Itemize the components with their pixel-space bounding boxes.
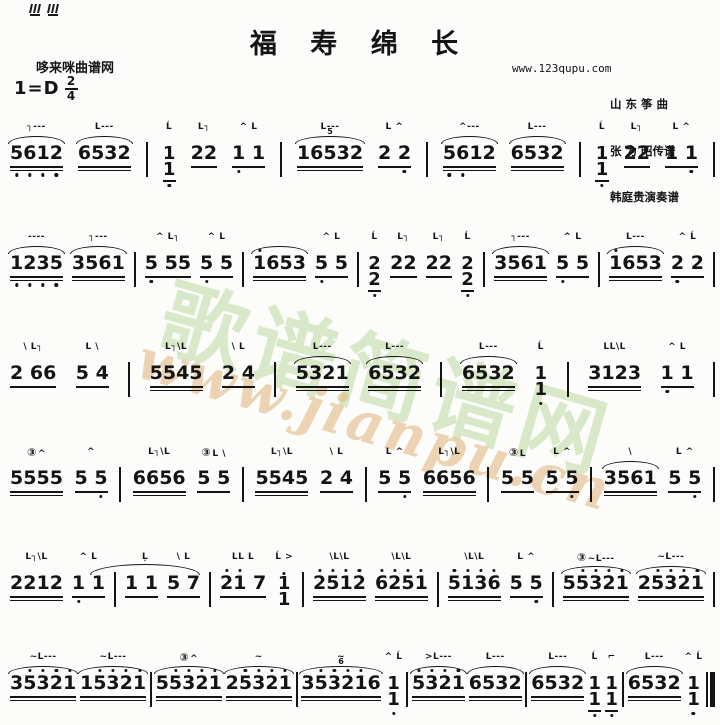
arc-row [163, 135, 176, 143]
technique-marks: Ĺ [599, 122, 605, 135]
note-digit: 2 [390, 253, 403, 274]
technique-marks: L ^ [517, 552, 535, 565]
note-digit: 2 [602, 573, 615, 594]
note-digit: 2 [222, 363, 235, 384]
octave-dot-slot [391, 493, 398, 501]
technique-marks: ^ Ĺ [385, 652, 403, 665]
beam-underlines [167, 596, 200, 598]
note-group: ^ L5 55 5 [315, 232, 348, 286]
arc-row [385, 665, 403, 673]
note-digit: 2 [408, 363, 421, 384]
beam-underlines [78, 166, 131, 171]
note-digit: 5 [150, 363, 163, 384]
technique-marks: Ĺ [166, 122, 172, 135]
note-digits: 22 [624, 143, 650, 164]
octave-dot-slot: 1 [687, 710, 700, 718]
octave-dot-slot: 1 [10, 281, 23, 289]
low-octave-dots: 1 1 [232, 168, 265, 176]
note-digit: 6 [436, 468, 449, 489]
beam-underlines [469, 696, 522, 701]
beam-line [609, 280, 662, 282]
note-digit: 2 [204, 143, 217, 164]
barline [713, 467, 715, 502]
note-digit: 5 [448, 573, 461, 594]
note-digit: 2 [10, 363, 23, 384]
octave-dot-slot: 1 [36, 171, 49, 179]
beam-underlines [494, 276, 547, 281]
note-digits: 6532 [78, 143, 131, 164]
note-digit: 6 [375, 573, 388, 594]
note-digit: 4 [282, 468, 295, 489]
beam-line [628, 696, 681, 698]
beam-underlines [76, 386, 109, 388]
note-group: ^ L5 55 5 [200, 232, 233, 286]
barline [598, 252, 600, 287]
note-digit: 4 [96, 363, 109, 384]
octave-dot-slot: 6 [456, 171, 469, 179]
note-digits: 11 [278, 573, 291, 608]
note-digit: 6 [469, 673, 482, 694]
note-group: ~L---15321 [80, 652, 146, 709]
octave-dot-slot: 1 [685, 168, 698, 176]
note-digits: 22 [426, 253, 452, 274]
octave-dot-slot [678, 168, 685, 176]
barline [713, 142, 715, 177]
low-octave-dots: 1 [595, 182, 608, 190]
technique-marks: ^--- [459, 122, 480, 135]
barline [296, 672, 298, 707]
octave-dot-slot [158, 278, 165, 286]
note-digit: 2 [403, 253, 416, 274]
note-digits: 1653 [253, 253, 306, 274]
arc-row [534, 355, 547, 363]
beam-line [511, 166, 564, 168]
note-group: L ^5 55 5 [668, 447, 701, 501]
note-group: L \5 4 [76, 342, 109, 396]
note-digit: 3 [301, 673, 314, 694]
note-digit: 6 [462, 363, 475, 384]
note-group: ^ L5 55 5 [556, 232, 589, 286]
low-octave-dots: 5 5 [200, 278, 233, 286]
beam-underlines [423, 491, 476, 496]
note-group: ^ Ĺ111 [685, 652, 703, 718]
beam-line [604, 491, 657, 493]
note-digit: 2 [615, 363, 628, 384]
low-octave-dots: 2 [368, 292, 381, 300]
technique-marks: ^ L [79, 552, 97, 565]
beam-underlines [375, 596, 428, 601]
note-digit: 5 [156, 673, 169, 694]
note-group: L---6532 [531, 652, 584, 709]
beam-line [320, 491, 353, 493]
beam-line [501, 491, 534, 493]
note-digit: 5 [197, 468, 210, 489]
octave-dot-slot: 5 [510, 598, 523, 606]
note-digit: 1 [209, 673, 222, 694]
technique-marks: \L\L [329, 552, 349, 565]
note-digits: 15321 [80, 673, 146, 694]
arc-row [588, 665, 601, 673]
note-group: Ĺ111 [595, 122, 608, 190]
technique-marks: L--- [95, 122, 114, 135]
beam-line [423, 495, 476, 497]
low-octave-dots: 5612 [10, 171, 63, 179]
note-digit: 2 [483, 143, 496, 164]
barline [119, 467, 121, 502]
note-digit: 6 [368, 363, 381, 384]
note-digit: 5 [576, 573, 589, 594]
octave-dot-slot: 1 [605, 712, 618, 720]
note-group: L---516532 [297, 122, 363, 179]
note-group: \ L2 4 [222, 342, 255, 396]
barline [114, 572, 116, 607]
note-group: \3561 [604, 447, 657, 504]
octave-dot-slot: 2 [483, 171, 496, 179]
beam-line [628, 700, 681, 702]
note-digit: 3 [474, 573, 487, 594]
technique-marks: L ^ [553, 447, 571, 460]
technique-marks: ^ Ĺ [685, 652, 703, 665]
note-digit: 6 [456, 143, 469, 164]
note-digits: 6532 [368, 363, 421, 384]
note-digit: 2 [226, 673, 239, 694]
technique-marks: ~L--- [100, 652, 127, 665]
technique-marks: L┐\L [165, 342, 187, 355]
note-digit: 5 [159, 468, 172, 489]
low-octave-dots: 5 5 [556, 278, 589, 286]
note-digit: 3 [604, 468, 617, 489]
technique-marks: ③~L--- [577, 552, 615, 565]
note-group: Ĺ222 [461, 232, 474, 300]
beam-line [255, 491, 308, 493]
beam-line [156, 700, 222, 702]
note-group: ┐---3561 [72, 232, 125, 289]
note-group: ^---56125612 [443, 122, 496, 179]
low-octave-dots: 1 [588, 712, 601, 720]
low-octave-dots: 5612 [443, 171, 496, 179]
note-group: L┐\L6656 [423, 447, 476, 504]
note-group: ^5 55 5 [75, 447, 108, 501]
note-digit: 6 [172, 468, 185, 489]
note-digit: 2 [341, 673, 354, 694]
note-digits: 2 66 [10, 363, 56, 384]
beam-line [412, 696, 465, 698]
beam-line [563, 596, 629, 598]
note-digit: 5 [10, 143, 23, 164]
score-line-3: \ L┐2 66L \5 4L┐\L5545\ L2 4L---5321L---… [10, 342, 715, 408]
note-digit: 5 [93, 673, 106, 694]
final-double-barline [706, 672, 715, 707]
note-digit: 7 [253, 573, 266, 594]
note-digit: 3 [425, 673, 438, 694]
note-digit: 5 [255, 468, 268, 489]
low-octave-dots: 5 5 [378, 493, 411, 501]
low-octave-dots: 1 [387, 710, 400, 718]
beam-underlines [296, 386, 349, 391]
octave-dot-slot: 1 [680, 388, 693, 396]
octave-dot-slot [213, 278, 220, 286]
octave-dot-slot: 5 [94, 493, 107, 501]
note-digits: 2512 [313, 573, 366, 594]
beam-line [78, 170, 131, 172]
note-digit: 1 [452, 673, 465, 694]
note-digit: 5 [169, 673, 182, 694]
beam-line [301, 700, 380, 702]
low-octave-dots: 2 [461, 292, 474, 300]
note-digit: 5 [651, 573, 664, 594]
low-octave-dots: 5 55 [145, 278, 191, 286]
note-group: ③^55321 [156, 652, 222, 709]
beam-underlines [226, 696, 292, 701]
note-digits: 21 7 [220, 573, 266, 594]
note-group: ^ L1 11 1 [232, 122, 265, 176]
note-digit: 6 [30, 363, 43, 384]
note-group: Ĺ >11 [275, 552, 293, 618]
note-digits: 5612 [10, 143, 63, 164]
beam-underlines [255, 491, 308, 496]
note-digit: 5 [10, 468, 23, 489]
note-digit: 5 [482, 673, 495, 694]
beam-underlines [222, 386, 255, 388]
note-group: \L\L5136 [448, 552, 501, 609]
low-octave-dots: 1 1 [72, 598, 105, 606]
note-group: ③L \5 5 [197, 447, 230, 501]
note-digit: 3 [588, 363, 601, 384]
beam-underlines [426, 276, 452, 278]
note-digit [514, 468, 521, 489]
note-group: ③^5555 [10, 447, 63, 504]
note-digit: 5 [85, 253, 98, 274]
note-digit: 2 [439, 673, 452, 694]
note-digit: 5 [279, 253, 292, 274]
octave-dot-slot: 1 [72, 598, 85, 606]
technique-marks: L--- [313, 342, 332, 355]
note-digit: 6 [463, 468, 476, 489]
barline [483, 252, 485, 287]
note-digits: 6532 [511, 143, 564, 164]
beam-line [412, 700, 465, 702]
beam-line [462, 386, 515, 388]
technique-marks: LL L [232, 552, 254, 565]
beam-underlines [368, 386, 421, 391]
note-digit: 5 [443, 143, 456, 164]
note-digit: 3 [649, 253, 662, 274]
octave-dot-slot: 1 [163, 182, 176, 190]
arc-row [605, 665, 618, 673]
octave-dot-slot: 1 [232, 168, 245, 176]
technique-marks: L--- [626, 232, 645, 245]
beam-line [226, 696, 292, 698]
beam-underlines [390, 276, 416, 278]
note-digit: 1 [63, 673, 76, 694]
note-digit: 3 [106, 673, 119, 694]
note-digit [246, 573, 253, 594]
technique-marks: \ [628, 447, 632, 460]
technique-marks: ⌐ [608, 652, 616, 665]
beam-line [156, 696, 222, 698]
note-digits: 3561 [72, 253, 125, 274]
beam-line [624, 166, 650, 168]
barline [209, 572, 211, 607]
note-digits: 22 [390, 253, 416, 274]
octave-dot-slot: 1 [252, 168, 265, 176]
technique-marks: L┐ [433, 232, 445, 245]
note-digits: 55321 [156, 673, 222, 694]
note-group: L---6532 [368, 342, 421, 399]
technique-marks: L┐ [631, 122, 643, 135]
beam-underlines [448, 596, 501, 601]
note-group: ~6353216 [301, 652, 380, 709]
note-digit: 1 [297, 143, 310, 164]
technique-marks: L┐\L [271, 447, 293, 460]
octave-dot-slot [245, 168, 252, 176]
note-digit: 5 [36, 468, 49, 489]
score-line-1: ┐---56125612L---6532Ĺ111L┐22^ L1 11 1L--… [10, 122, 715, 190]
note-group: L ^5 55 5 [546, 447, 579, 501]
beam-line [638, 596, 704, 598]
note-digit: 2 [195, 673, 208, 694]
note-digit: 3 [395, 363, 408, 384]
beam-line [423, 491, 476, 493]
note-group: >L---5321 [412, 652, 465, 709]
note-digit: 2 [313, 573, 326, 594]
low-octave-dots: 2 2 [378, 168, 411, 176]
note-digit: 6 [531, 673, 544, 694]
note-group: ~L---25321 [638, 552, 704, 609]
thin-bar [706, 672, 708, 707]
octave-dot-slot: 5 [378, 493, 391, 501]
beam-underlines [150, 386, 203, 391]
note-digit: 2 [120, 673, 133, 694]
barline [406, 672, 408, 707]
technique-marks: L┐ [198, 122, 210, 135]
note-digits: 5612 [443, 143, 496, 164]
note-digits: 353216 [301, 673, 380, 694]
technique-marks: L┐\L [148, 447, 170, 460]
beam-underlines [609, 276, 662, 281]
note-digit: 1 [336, 363, 349, 384]
technique-marks: L┐ [397, 232, 409, 245]
technique-marks: L--- [548, 652, 567, 665]
beam-line [531, 696, 584, 698]
note-group: L ^1 11 1 [665, 122, 698, 176]
note-group: L┐22 [624, 122, 650, 176]
note-digit: 6 [98, 253, 111, 274]
technique-marks: L--- [385, 342, 404, 355]
note-digit: 4 [242, 363, 255, 384]
barline [487, 467, 489, 502]
barline [713, 362, 715, 397]
note-group: ⌐111 [605, 652, 618, 720]
note-digit: 1 [145, 573, 158, 594]
note-digit: 6 [23, 143, 36, 164]
technique-marks: L--- [528, 122, 547, 135]
technique-marks: Ĺ [371, 232, 377, 245]
note-digit: 5 [91, 143, 104, 164]
note-digits: 6532 [628, 673, 681, 694]
beam-line [313, 596, 366, 598]
octave-dot-slot: 6 [23, 171, 36, 179]
note-digit: 2 [502, 363, 515, 384]
note-digit: 5 [524, 143, 537, 164]
technique-marks: L--- [479, 342, 498, 355]
beam-line [375, 600, 428, 602]
note-digit: 5 [475, 363, 488, 384]
note-digit [23, 363, 30, 384]
score-line-4: ③^5555^5 55 5L┐\L6656③L \5 5L┐\L5545\ L2… [10, 447, 715, 504]
note-digits: 25321 [638, 573, 704, 594]
technique-marks: ^ L [240, 122, 258, 135]
note-digit: 5 [326, 573, 339, 594]
note-digits: 6656 [423, 468, 476, 489]
note-digits: 55321 [563, 573, 629, 594]
barline [713, 572, 715, 607]
note-digit: 3 [337, 143, 350, 164]
note-digits: 25321 [226, 673, 292, 694]
beam-underlines [531, 696, 584, 701]
beam-line [222, 386, 255, 388]
octave-dot-slot: 5 [165, 278, 178, 286]
note-group: ^ L1 11 1 [661, 342, 694, 396]
octave-dot-slot: 5 [220, 278, 233, 286]
thick-bar [710, 672, 715, 707]
note-group: LL L21 7 [220, 552, 266, 606]
beam-line [511, 170, 564, 172]
note-digit: 2 [50, 573, 63, 594]
note-digit: 1 [691, 573, 704, 594]
note-digit: 1 [36, 143, 49, 164]
note-digit: 1 [133, 673, 146, 694]
note-digit: 1 [279, 673, 292, 694]
octave-dot-slot: 2 [461, 292, 474, 300]
tuplet-number: 6 [337, 658, 345, 665]
low-octave-dots: 5 5 [510, 598, 543, 606]
note-digit: 2 [426, 253, 439, 274]
barline [357, 252, 359, 287]
beam-underlines [624, 166, 650, 168]
beam-line [448, 600, 501, 602]
note-digits: 5321 [412, 673, 465, 694]
barline [242, 467, 244, 502]
note-digits: 6532 [531, 673, 584, 694]
beam-line [10, 491, 63, 493]
note-digit: 1 [643, 468, 656, 489]
note-digit: 2 [353, 573, 366, 594]
note-group: L┐22 [191, 122, 217, 176]
note-digit: 5 [295, 468, 308, 489]
note-group: ~25321 [226, 652, 292, 709]
technique-marks: ~L--- [30, 652, 57, 665]
note-digits: 22 [191, 143, 217, 164]
beam-line [80, 700, 146, 702]
note-digit: 3 [309, 363, 322, 384]
technique-marks: LL\L [603, 342, 626, 355]
octave-dot-slot: 2 [23, 281, 36, 289]
beam-underlines [511, 166, 564, 171]
technique-marks: ┐--- [27, 122, 46, 135]
note-digit: 6 [628, 673, 641, 694]
note-digit: 5 [449, 468, 462, 489]
string-number-icon: ③ [27, 446, 37, 459]
technique-marks: ③^ [27, 447, 46, 460]
octave-dot-slot: 5 [10, 171, 23, 179]
note-digit: 2 [50, 143, 63, 164]
note-digit: 5 [50, 468, 63, 489]
beam-underlines [10, 696, 76, 701]
note-digit: 6 [622, 253, 635, 274]
note-digit: 2 [439, 253, 452, 274]
note-digit: 3 [10, 673, 23, 694]
